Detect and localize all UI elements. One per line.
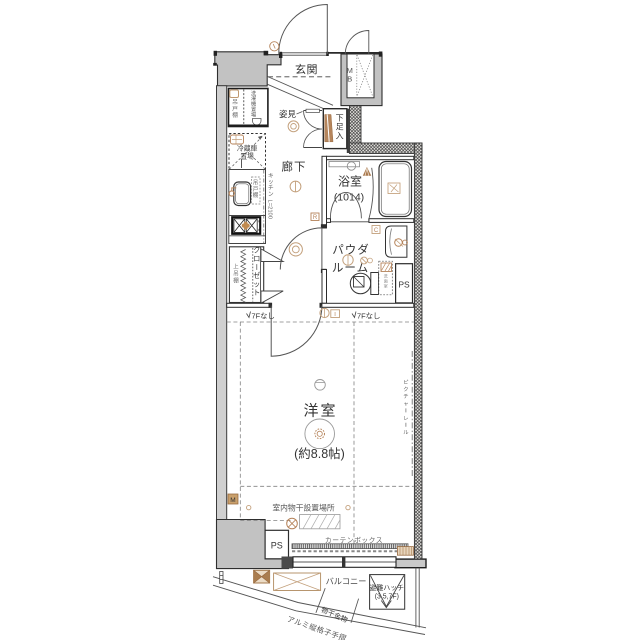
svg-text:ャ: ャ — [403, 401, 408, 407]
svg-text:廊下: 廊下 — [282, 160, 307, 174]
svg-text:足: 足 — [336, 122, 344, 131]
svg-text:棚: 棚 — [253, 191, 259, 199]
svg-text:7Fなし: 7Fなし — [357, 312, 380, 321]
svg-text:ン: ン — [268, 192, 274, 198]
svg-text:パウダ: パウダ — [332, 243, 370, 257]
svg-text:チ: チ — [403, 393, 408, 400]
svg-text:室内物干設置場所: 室内物干設置場所 — [272, 503, 335, 513]
svg-text:下: 下 — [336, 114, 344, 123]
svg-text:姿見: 姿見 — [279, 109, 297, 119]
svg-text:C: C — [374, 228, 379, 234]
svg-text:R: R — [313, 215, 318, 221]
svg-text:冷蔵庫: 冷蔵庫 — [237, 144, 258, 153]
svg-text:ッ: ッ — [268, 180, 274, 186]
svg-text:棚: 棚 — [232, 111, 238, 119]
svg-text:ト: ト — [253, 288, 260, 297]
svg-text:上: 上 — [233, 263, 239, 271]
svg-text:ク: ク — [403, 386, 408, 393]
svg-text:チ: チ — [268, 185, 274, 192]
svg-text:吊: 吊 — [253, 180, 259, 187]
svg-text:浴室: 浴室 — [338, 174, 362, 189]
svg-text:L=2100: L=2100 — [267, 200, 273, 220]
svg-text:室: 室 — [384, 283, 388, 289]
svg-text:カーテンボックス: カーテンボックス — [325, 537, 383, 545]
svg-text:洋室: 洋室 — [303, 403, 337, 420]
svg-text:ピ: ピ — [403, 379, 408, 386]
svg-text:避難ハッチ: 避難ハッチ — [370, 583, 405, 592]
svg-text:キ: キ — [268, 174, 274, 180]
svg-text:場: 場 — [251, 110, 256, 118]
svg-text:ロ: ロ — [253, 254, 260, 263]
svg-text:PS: PS — [398, 280, 410, 290]
svg-text:ル: ル — [403, 430, 409, 436]
svg-text:M: M — [230, 497, 235, 504]
svg-text:戸: 戸 — [232, 105, 238, 112]
svg-text:7Fなし: 7Fなし — [252, 312, 275, 321]
svg-text:バルコニー: バルコニー — [326, 577, 367, 586]
svg-text:B: B — [347, 75, 352, 84]
svg-text:玄関: 玄関 — [295, 62, 318, 76]
svg-text:PS: PS — [271, 541, 283, 551]
svg-text:吊: 吊 — [232, 99, 238, 106]
svg-text:(3,5,7F): (3,5,7F) — [375, 593, 399, 600]
svg-text:レ: レ — [403, 416, 408, 422]
svg-text:吊: 吊 — [233, 271, 239, 278]
svg-text:棚: 棚 — [233, 277, 239, 285]
svg-text:入: 入 — [336, 131, 344, 140]
svg-text:戸: 戸 — [253, 186, 259, 193]
svg-text:ー: ー — [252, 263, 261, 270]
svg-text:置場: 置場 — [240, 152, 254, 161]
